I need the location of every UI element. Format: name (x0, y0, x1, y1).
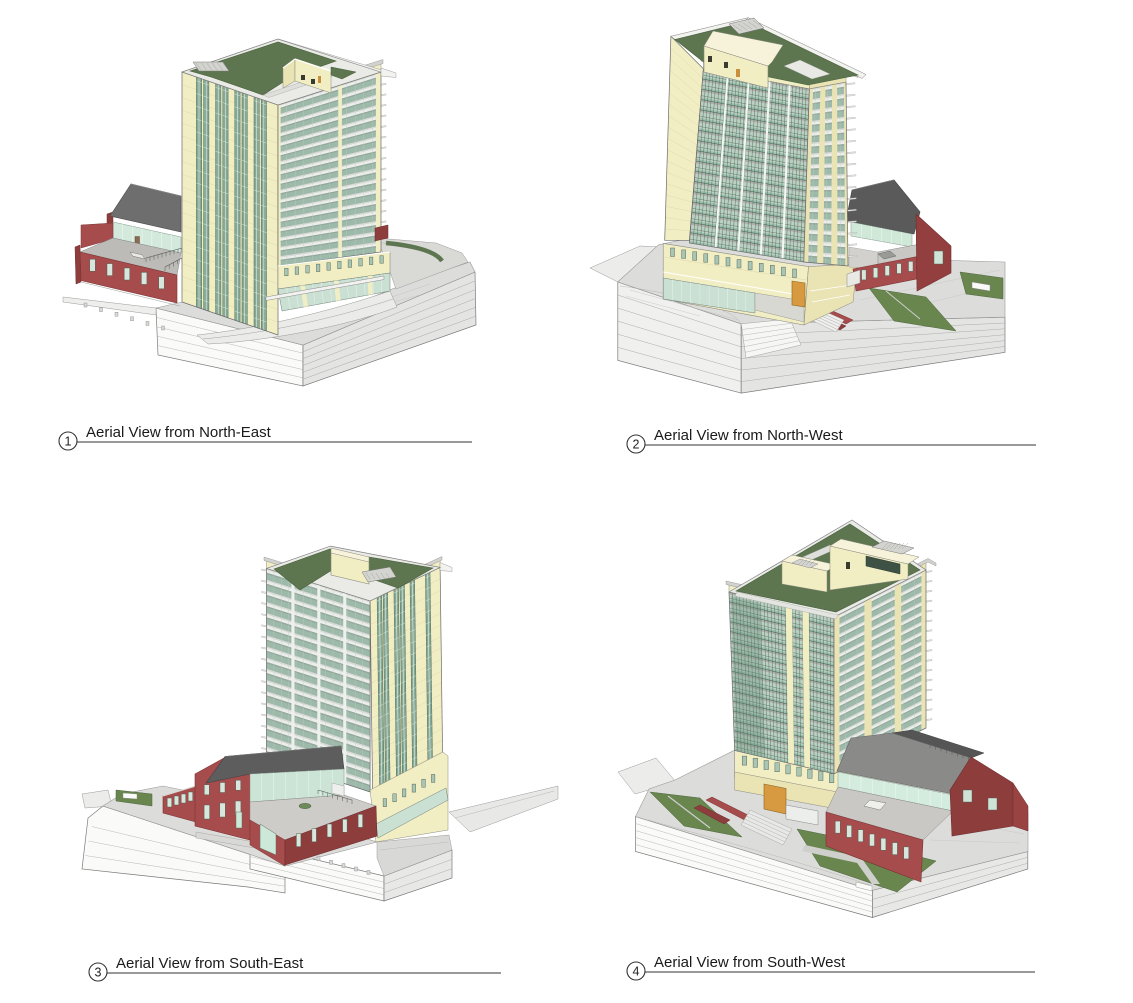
svg-text:Aerial View from North-East: Aerial View from North-East (86, 424, 272, 441)
svg-text:3: 3 (95, 966, 102, 980)
svg-text:2: 2 (633, 438, 640, 452)
svg-text:1: 1 (65, 435, 72, 449)
svg-text:4: 4 (633, 965, 640, 979)
svg-text:Aerial View from South-West: Aerial View from South-West (654, 954, 846, 971)
svg-text:Aerial View from South-East: Aerial View from South-East (116, 955, 304, 972)
svg-text:Aerial View from North-West: Aerial View from North-West (654, 427, 843, 444)
